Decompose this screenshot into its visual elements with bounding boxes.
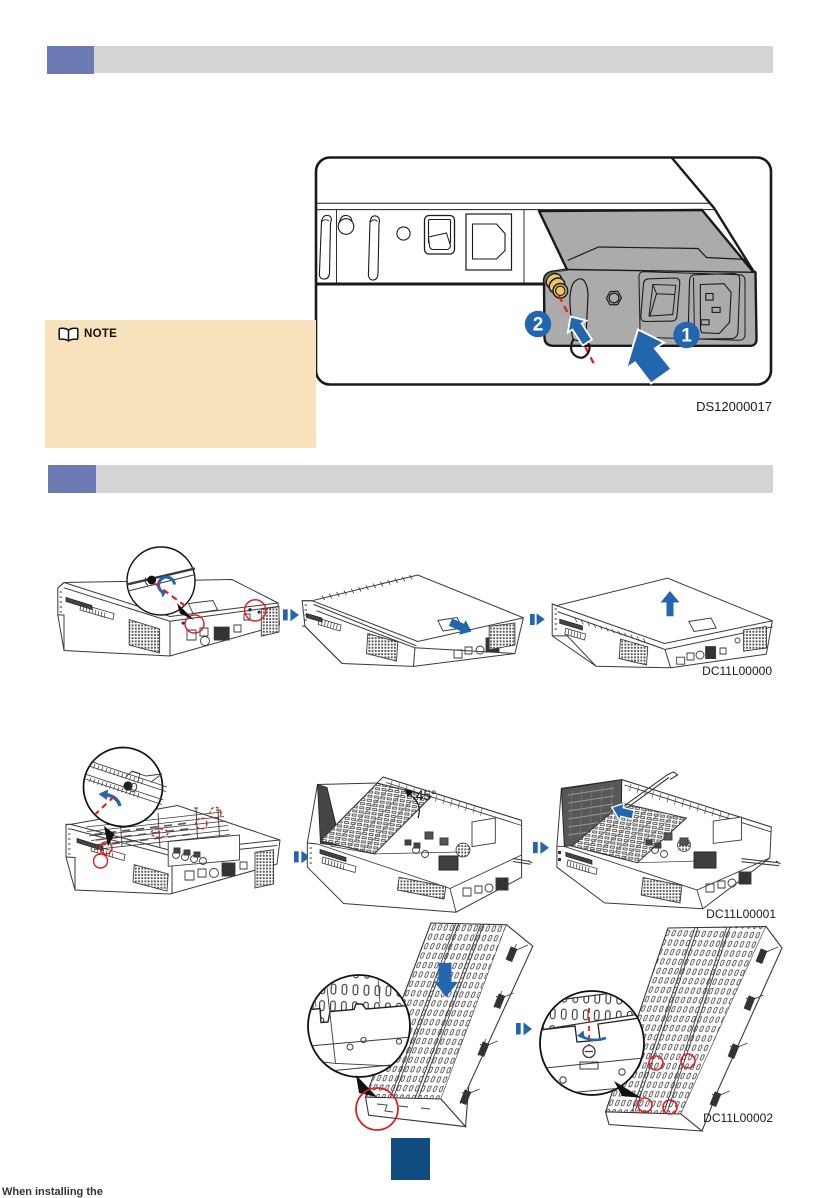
- svg-text:2: 2: [533, 315, 544, 336]
- svg-text:1: 1: [681, 326, 692, 347]
